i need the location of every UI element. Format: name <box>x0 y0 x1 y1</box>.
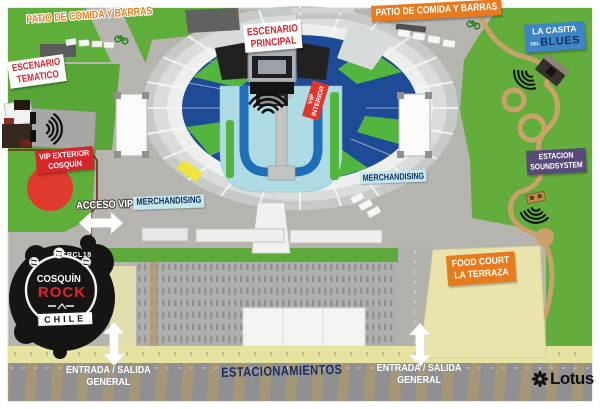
gate-east <box>397 92 432 158</box>
gate-west <box>114 92 149 158</box>
label-line: SOUNDSYSTEM <box>530 160 583 173</box>
label-food-court: FOOD COURT LA TERRAZA <box>446 251 516 285</box>
logo-chile-text: CHILE <box>38 312 92 326</box>
label-line: GENERAL <box>366 375 472 387</box>
label-entrada-salida-east: ENTRADA / SALIDA GENERAL <box>366 363 472 386</box>
sponsor-lotus: Lotus <box>532 369 594 389</box>
lotus-flower-icon <box>532 371 548 387</box>
label-line: BLUES <box>540 34 581 49</box>
label-acceso-vip: ACCESO VIP <box>76 198 133 212</box>
label-estacionamientos: ESTACIONAMIENTOS <box>221 362 343 381</box>
logo-rock-text: ROCK <box>30 284 94 301</box>
label-line: GENERAL <box>58 377 159 389</box>
label-estacion-soundsystem: ESTACION SOUNDSYSTEM <box>526 148 587 175</box>
sponsor-name: Lotus <box>550 369 594 389</box>
logo-hashtag: #CRCL18 <box>57 252 92 260</box>
label-merchandising-right: MERCHANDISING <box>360 170 427 185</box>
stadium-exit-ramp <box>252 203 290 253</box>
label-escenario-principal: ESCENARIO PRINCIPAL <box>243 20 303 53</box>
label-line: DEL <box>530 40 539 46</box>
festival-map: PATIO DE COMIDA Y BARRAS PATIO DE COMIDA… <box>0 0 600 409</box>
label-entrada-salida-west: ENTRADA / SALIDA GENERAL <box>58 365 159 388</box>
parking-building <box>243 308 365 346</box>
label-line: ENTRADA / SALIDA <box>366 363 472 375</box>
label-line: ENTRADA / SALIDA <box>58 365 159 377</box>
parking-area <box>133 262 398 346</box>
label-merchandising-left: MERCHANDISING <box>133 195 205 210</box>
label-la-casita-blues: LA CASITA DEL BLUES <box>524 21 586 54</box>
